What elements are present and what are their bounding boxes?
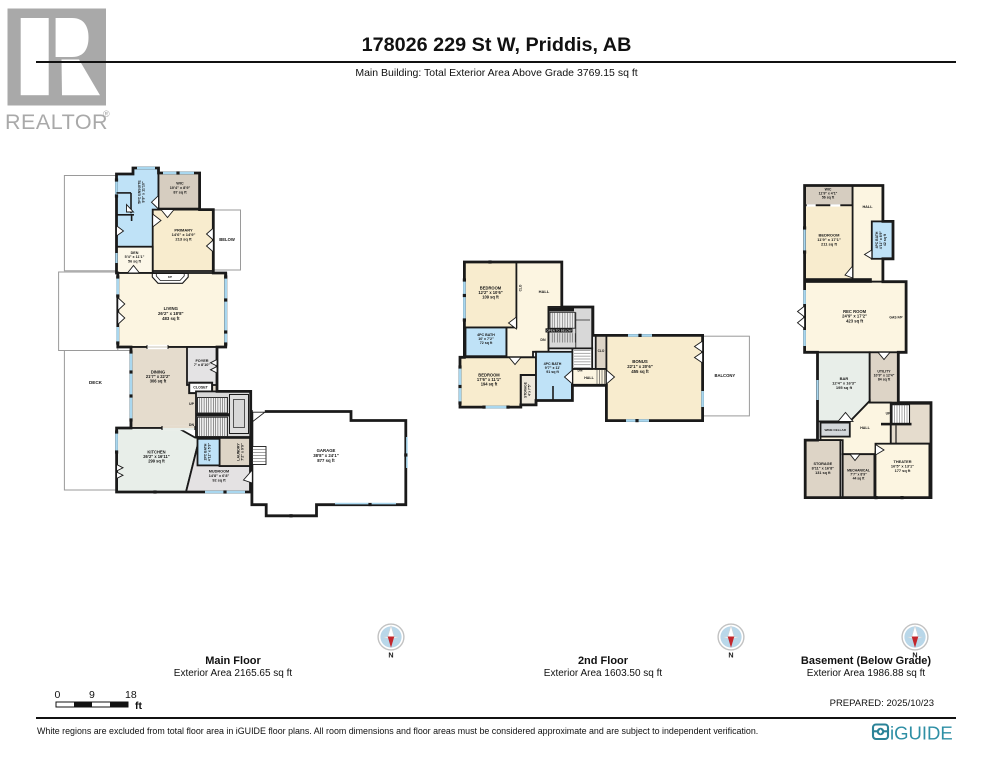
svg-text:UP: UP — [886, 412, 891, 416]
svg-text:CLOSET: CLOSET — [193, 385, 208, 389]
svg-text:WINE CELLAR: WINE CELLAR — [824, 428, 846, 432]
svg-text:FOYER7’ x 8’10": FOYER7’ x 8’10" — [194, 359, 211, 367]
svg-text:BELOW: BELOW — [219, 237, 235, 242]
svg-text:0: 0 — [55, 689, 61, 701]
svg-text:5PC ENSUITE9’9" x 11’10": 5PC ENSUITE9’9" x 11’10" — [137, 180, 145, 204]
svg-text:HALL: HALL — [860, 426, 870, 430]
svg-text:DN: DN — [540, 338, 546, 342]
svg-text:HALL: HALL — [584, 376, 594, 380]
svg-text:UP: UP — [189, 402, 195, 406]
svg-text:LAUNDRY7’2" x 9’9": LAUNDRY7’2" x 9’9" — [236, 443, 244, 461]
svg-text:CLO: CLO — [598, 349, 605, 353]
svg-text:DN: DN — [578, 369, 583, 373]
svg-text:HALL: HALL — [539, 289, 550, 294]
svg-text:GAS F/P: GAS F/P — [889, 316, 903, 320]
svg-text:DN: DN — [189, 423, 195, 427]
svg-text:9: 9 — [89, 689, 95, 701]
svg-text:ft: ft — [135, 700, 142, 712]
svg-text:F/P: F/P — [168, 275, 172, 279]
svg-text:iGUIDE: iGUIDE — [890, 723, 953, 744]
svg-text:STORAGE4’ x 7’5": STORAGE4’ x 7’5" — [524, 382, 532, 398]
svg-text:N: N — [388, 651, 393, 660]
svg-text:DECK: DECK — [89, 380, 103, 385]
svg-text:HALL: HALL — [862, 205, 873, 209]
svg-text:2PC BATH4’11" x 5’3": 2PC BATH4’11" x 5’3" — [204, 443, 212, 462]
svg-text:OPEN TO BELOW: OPEN TO BELOW — [546, 329, 571, 333]
svg-text:CLO: CLO — [518, 284, 522, 291]
svg-text:BALCONY: BALCONY — [714, 373, 735, 378]
